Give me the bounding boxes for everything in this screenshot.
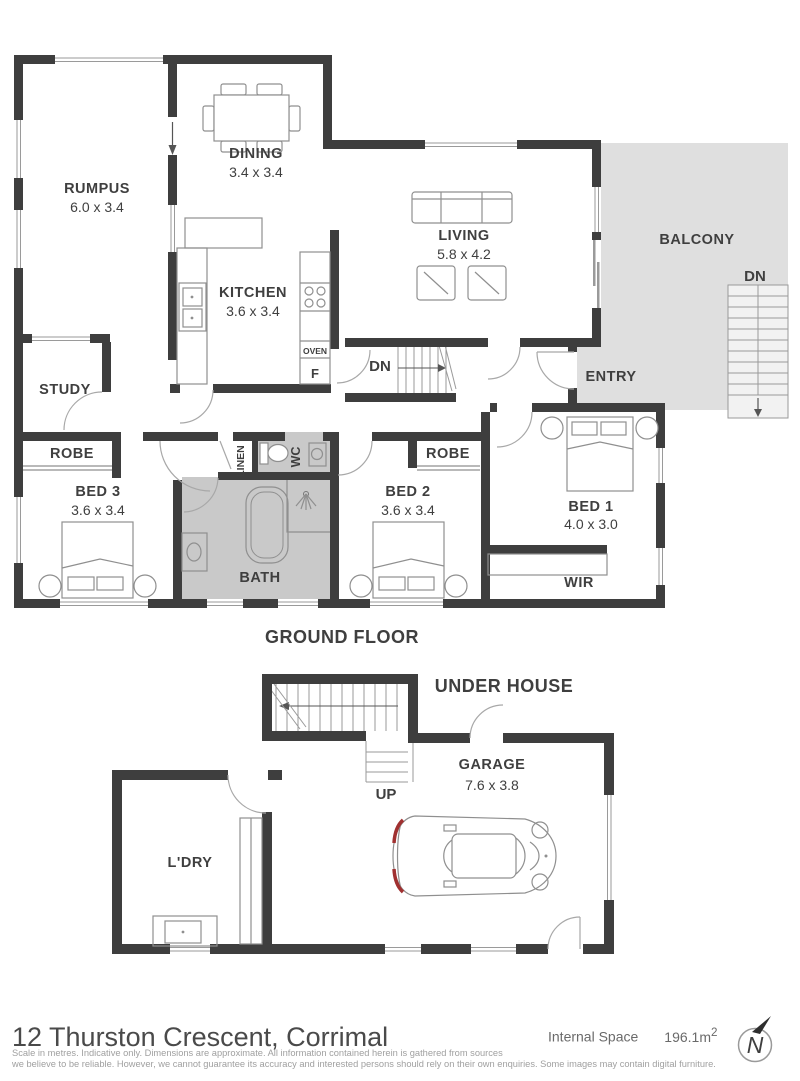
room-label-bath: BATH — [239, 570, 280, 586]
car-icon — [393, 816, 556, 896]
disclaimer-line1: Scale in metres. Indicative only. Dimens… — [12, 1048, 503, 1058]
label-up: UP — [376, 786, 397, 803]
room-label-rumpus: RUMPUS — [64, 181, 130, 197]
under-house-title: UNDER HOUSE — [435, 676, 574, 696]
bed3-icon — [39, 522, 156, 598]
room-dims-bed2: 3.6 x 3.4 — [381, 502, 435, 518]
room-label-bed1: BED 1 — [568, 499, 613, 515]
label-oven: OVEN — [303, 346, 327, 356]
under-house-walls — [112, 674, 614, 954]
stove-icon — [305, 287, 325, 307]
room-label-linen: LINEN — [235, 445, 247, 477]
north-compass-icon: N — [730, 1014, 780, 1077]
room-label-wc: WC — [289, 447, 303, 468]
bed2-icon — [350, 522, 467, 598]
room-dims-bed3: 3.6 x 3.4 — [71, 502, 125, 518]
room-label-robe2: ROBE — [426, 446, 470, 462]
room-label-garage: GARAGE — [459, 757, 526, 773]
room-label-bed3: BED 3 — [75, 484, 120, 500]
balcony-stairs-icon — [728, 285, 788, 418]
room-dims-bed1: 4.0 x 3.0 — [564, 516, 618, 532]
room-label-kitchen: KITCHEN — [219, 285, 287, 301]
room-label-dining: DINING — [229, 146, 283, 162]
room-dims-garage: 7.6 x 3.8 — [465, 777, 519, 793]
floorplan-page: RUMPUS 6.0 x 3.4 DINING 3.4 x 3.4 KITCHE… — [0, 0, 800, 1081]
room-label-study: STUDY — [39, 382, 91, 398]
internal-space: Internal Space196.1m2 — [548, 1026, 717, 1045]
internal-space-label: Internal Space — [548, 1029, 638, 1045]
disclaimer-line2: we believe to be reliable. However, we c… — [12, 1059, 716, 1069]
compass-letter: N — [747, 1032, 764, 1058]
room-label-living: LIVING — [438, 228, 489, 244]
room-dims-kitchen: 3.6 x 3.4 — [226, 303, 280, 319]
bed1-icon — [541, 417, 658, 491]
kitchen-sink-icon — [179, 283, 206, 331]
under-house-plan: UNDER HOUSE GARAGE 7.6 x 3.8 UP L'DRY — [112, 674, 614, 954]
room-label-balcony: BALCONY — [659, 232, 734, 248]
laundry-tub-icon — [153, 916, 217, 946]
sliding-door-icon — [593, 240, 600, 308]
room-dims-rumpus: 6.0 x 3.4 — [70, 199, 124, 215]
floorplan-drawing: RUMPUS 6.0 x 3.4 DINING 3.4 x 3.4 KITCHE… — [0, 0, 800, 1010]
room-dims-dining: 3.4 x 3.4 — [229, 164, 283, 180]
dining-table-icon — [203, 84, 300, 152]
sofa-icon — [412, 192, 512, 223]
internal-space-sup: 2 — [711, 1026, 717, 1039]
room-dims-living: 5.8 x 4.2 — [437, 246, 491, 262]
label-dn-internal: DN — [369, 358, 391, 375]
room-label-wir: WIR — [564, 575, 594, 591]
ground-floor-plan: RUMPUS 6.0 x 3.4 DINING 3.4 x 3.4 KITCHE… — [14, 55, 788, 647]
internal-stairs-icon — [398, 341, 456, 393]
laundry-cupboard-icon — [240, 818, 262, 944]
room-label-robe3: ROBE — [50, 446, 94, 462]
room-label-entry: ENTRY — [585, 369, 636, 385]
ground-floor-title: GROUND FLOOR — [265, 627, 419, 647]
room-label-ldry: L'DRY — [168, 855, 213, 871]
room-label-bed2: BED 2 — [385, 484, 430, 500]
armchair-icon — [417, 266, 506, 300]
internal-space-value: 196.1m — [664, 1029, 711, 1045]
label-fridge: F — [311, 366, 319, 381]
label-dn-balcony: DN — [744, 268, 766, 285]
